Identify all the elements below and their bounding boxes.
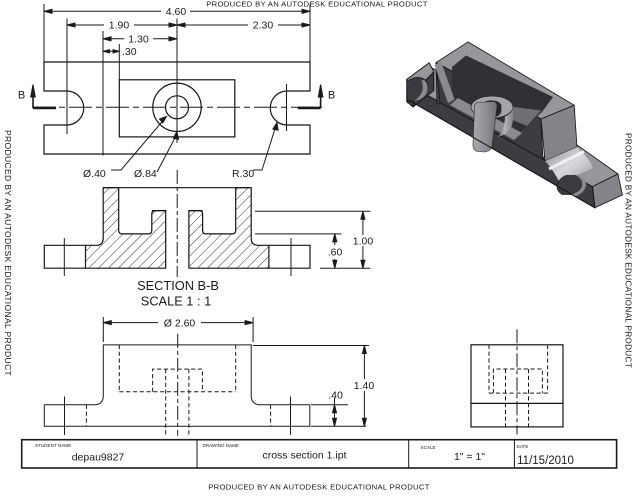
svg-text:Ø.84: Ø.84 bbox=[134, 168, 157, 180]
svg-text:.60: .60 bbox=[328, 247, 343, 259]
svg-text:SCALE 1 : 1: SCALE 1 : 1 bbox=[141, 294, 211, 309]
svg-text:Ø 2.60: Ø 2.60 bbox=[164, 318, 196, 330]
svg-text:1.30: 1.30 bbox=[128, 34, 149, 46]
svg-text:PRODUCED BY AN AUTODESK EDUCAT: PRODUCED BY AN AUTODESK EDUCATIONAL PROD… bbox=[208, 482, 430, 491]
svg-text:11/15/2010: 11/15/2010 bbox=[517, 455, 574, 467]
svg-text:STUDENT NAME: STUDENT NAME bbox=[35, 443, 71, 448]
svg-text:1.00: 1.00 bbox=[353, 236, 374, 248]
svg-text:cross section 1.ipt: cross section 1.ipt bbox=[262, 450, 346, 462]
svg-text:SCALE: SCALE bbox=[421, 445, 436, 450]
svg-text:4.60: 4.60 bbox=[166, 6, 187, 18]
svg-text:SECTION B-B: SECTION B-B bbox=[137, 278, 219, 293]
svg-text:PRODUCED BY AN AUTODESK EDUCAT: PRODUCED BY AN AUTODESK EDUCATIONAL PROD… bbox=[624, 133, 633, 368]
svg-text:depau9827: depau9827 bbox=[72, 452, 125, 464]
svg-text:.30: .30 bbox=[122, 46, 137, 58]
svg-text:1.40: 1.40 bbox=[354, 380, 375, 392]
svg-text:B: B bbox=[18, 90, 25, 102]
svg-text:DRAWING NAME: DRAWING NAME bbox=[203, 443, 240, 448]
svg-text:.40: .40 bbox=[328, 390, 343, 402]
svg-text:R.30: R.30 bbox=[232, 168, 254, 180]
svg-text:PRODUCED BY AN AUTODESK EDUCAT: PRODUCED BY AN AUTODESK EDUCATIONAL PROD… bbox=[206, 0, 428, 8]
svg-text:DATE: DATE bbox=[517, 444, 529, 449]
svg-text:B: B bbox=[328, 90, 335, 102]
svg-text:2.30: 2.30 bbox=[253, 20, 274, 32]
svg-text:Ø.40: Ø.40 bbox=[83, 168, 106, 180]
svg-text:PRODUCED BY AN AUTODESK EDUCAT: PRODUCED BY AN AUTODESK EDUCATIONAL PROD… bbox=[3, 130, 13, 377]
svg-text:1.90: 1.90 bbox=[109, 20, 130, 32]
svg-text:1" = 1": 1" = 1" bbox=[454, 451, 485, 463]
